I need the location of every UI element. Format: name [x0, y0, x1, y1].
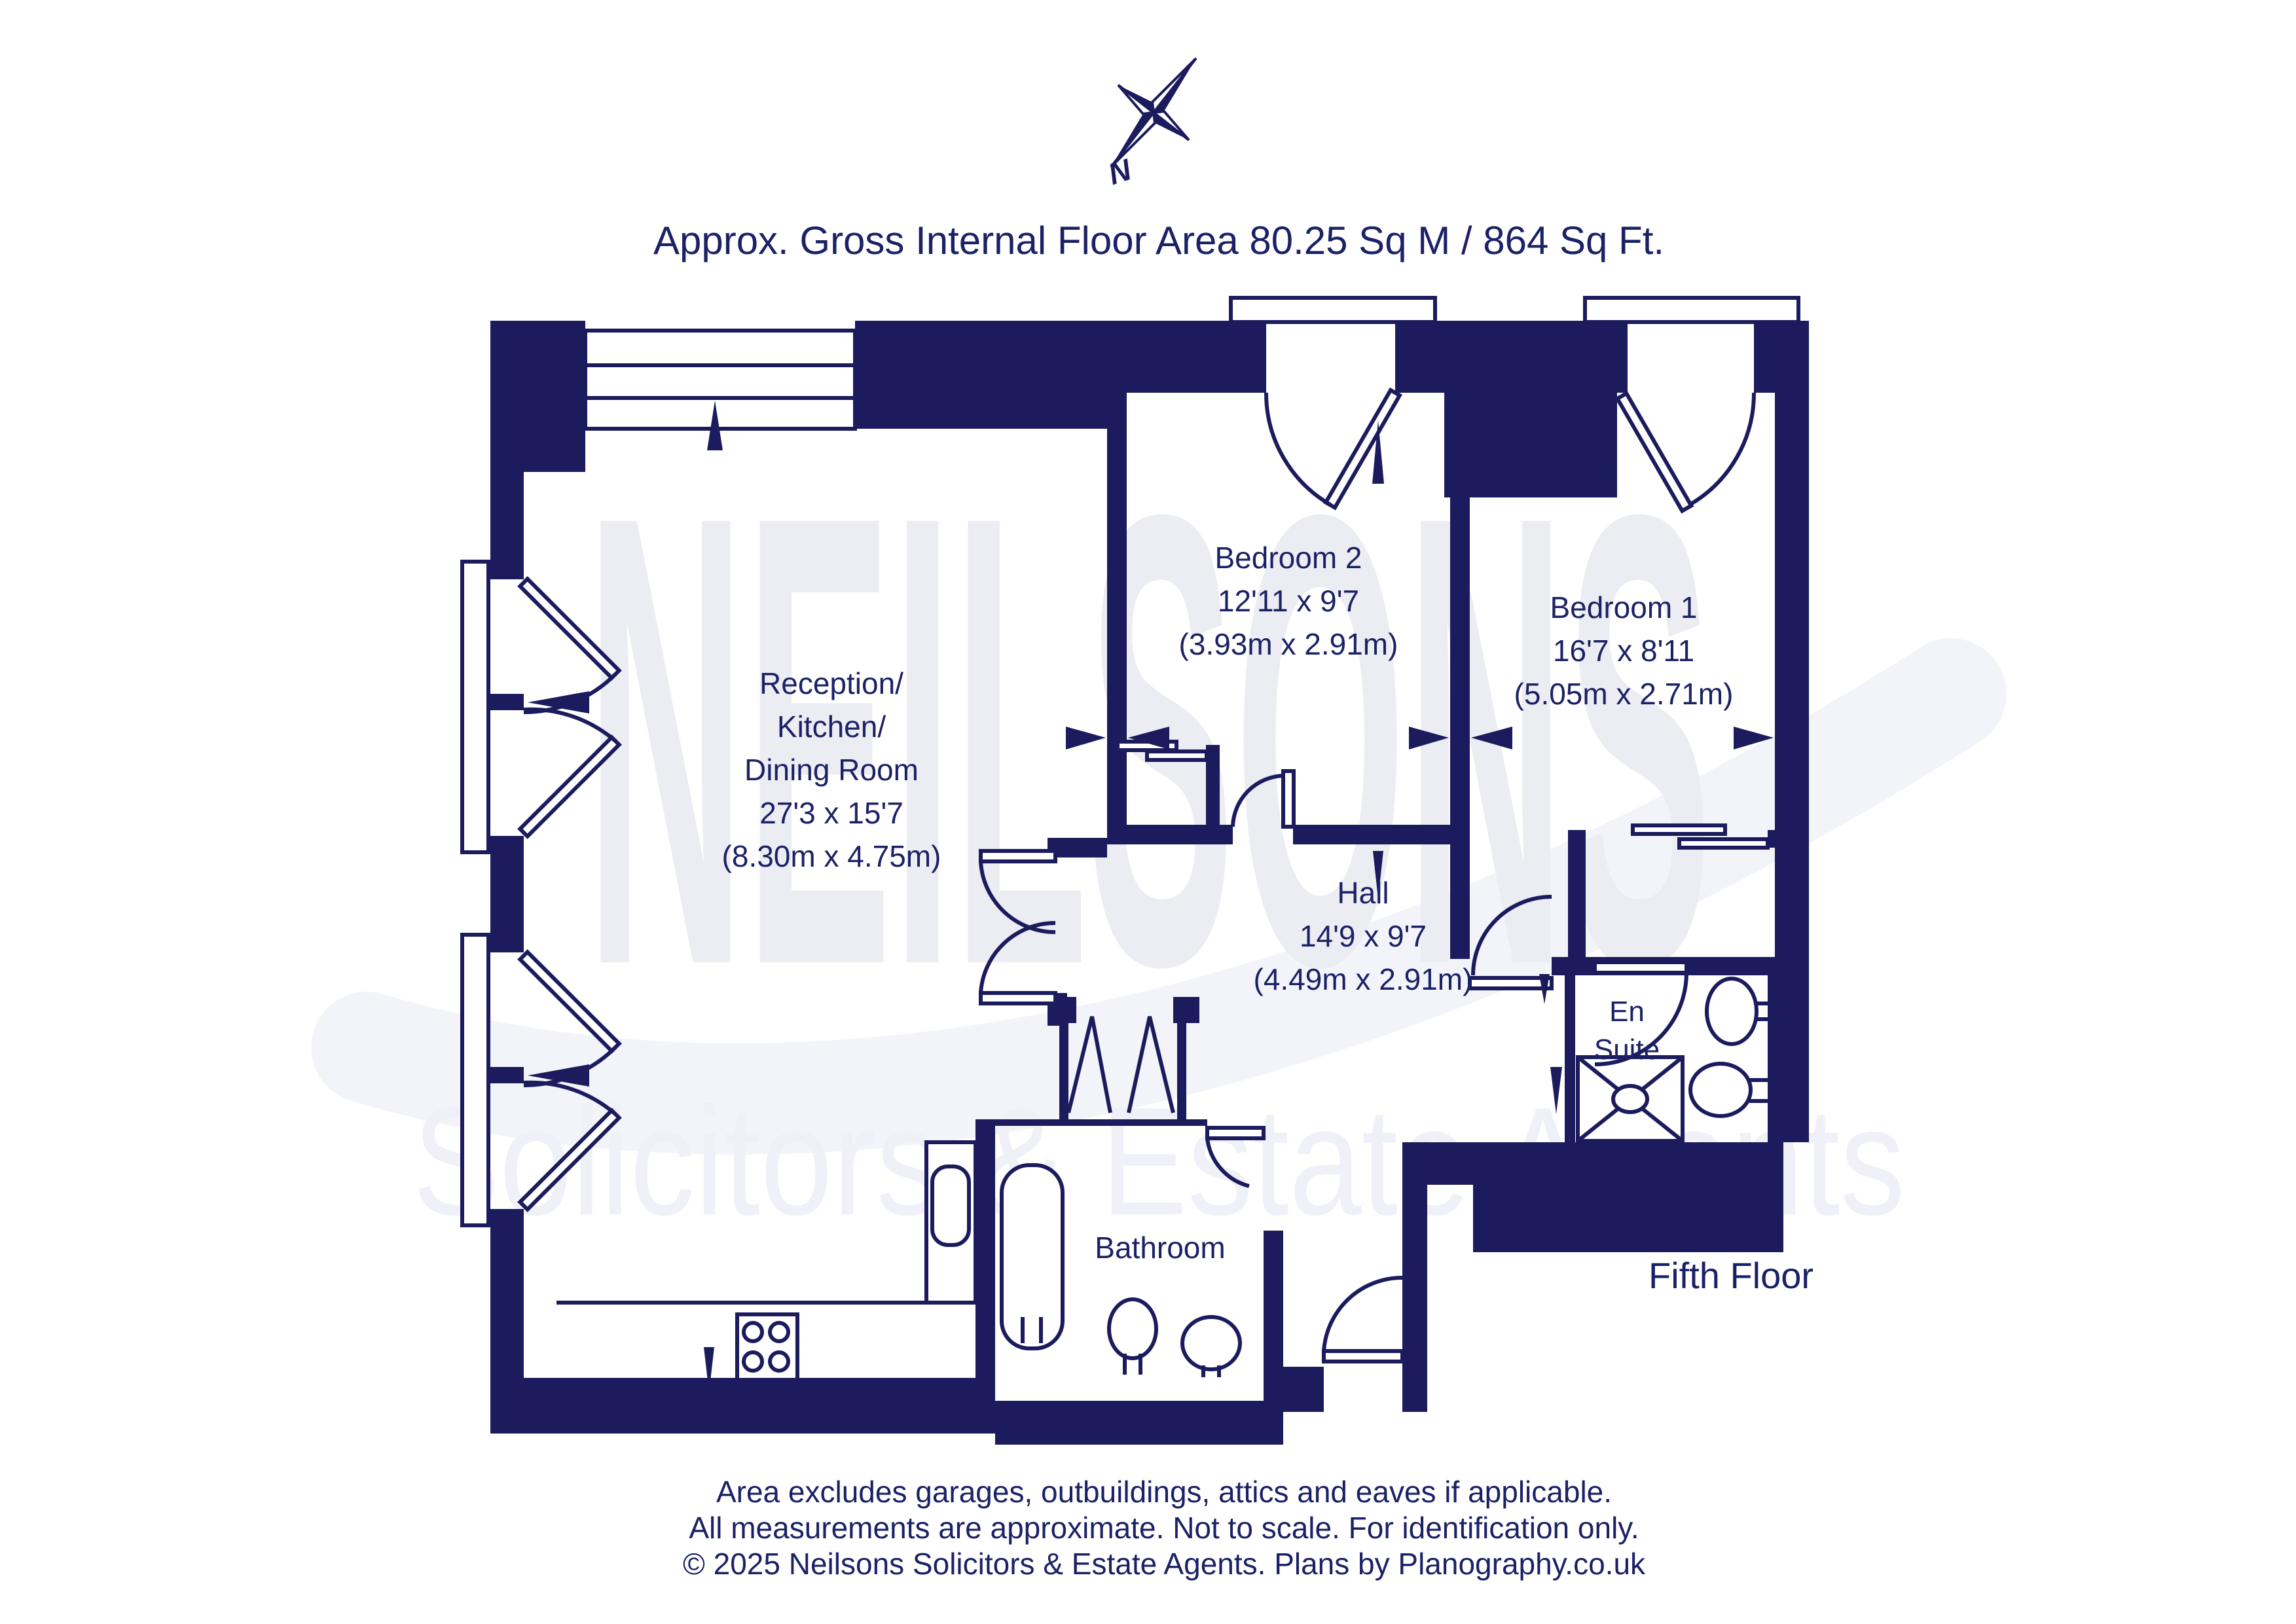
floor-plan-page: NEILSONS Solicitors & Estate Agents N Ap…	[0, 0, 2296, 1624]
ensuite-sink-icon	[1707, 979, 1768, 1044]
bathroom-label: Bathroom	[1095, 1231, 1225, 1265]
toilet-icon	[1109, 1299, 1156, 1375]
sink-icon	[1182, 1317, 1240, 1377]
page-title: Approx. Gross Internal Floor Area 80.25 …	[653, 219, 1664, 262]
compass-icon: N	[1104, 58, 1196, 191]
wardrobe-slider	[1679, 839, 1768, 848]
footer-line: Area excludes garages, outbuildings, att…	[716, 1475, 1612, 1509]
compass-north-label: N	[1104, 152, 1135, 191]
svg-text:(8.30m x 4.75m): (8.30m x 4.75m)	[722, 839, 941, 873]
svg-text:(3.93m x 2.91m): (3.93m x 2.91m)	[1179, 627, 1398, 661]
svg-text:27'3 x 15'7: 27'3 x 15'7	[759, 796, 903, 830]
window-sill	[1585, 298, 1798, 322]
bath-icon	[1002, 1165, 1063, 1348]
footer-line: © 2025 Neilsons Solicitors & Estate Agen…	[683, 1547, 1646, 1581]
window-sill	[1231, 298, 1435, 322]
svg-text:16'7 x 8'11: 16'7 x 8'11	[1553, 634, 1694, 668]
kitchen-sink-icon	[932, 1166, 969, 1245]
wardrobe-slider	[1633, 825, 1725, 834]
wardrobe-slider	[1147, 751, 1207, 760]
svg-text:(5.05m x 2.71m): (5.05m x 2.71m)	[1514, 677, 1734, 711]
compass-point	[1154, 111, 1189, 140]
compass-point	[1152, 58, 1196, 113]
floor-plan: NEILSONS Solicitors & Estate Agents N Ap…	[0, 0, 2296, 1624]
footer: Area excludes garages, outbuildings, att…	[683, 1475, 1646, 1581]
stairs-icon	[585, 331, 855, 429]
balcony-outline	[462, 562, 488, 852]
floor-name-label: Fifth Floor	[1649, 1255, 1813, 1296]
svg-text:Dining Room: Dining Room	[744, 753, 919, 787]
compass-point	[1118, 85, 1154, 114]
svg-text:(4.49m x 2.91m): (4.49m x 2.91m)	[1254, 962, 1473, 996]
svg-text:Bedroom 2: Bedroom 2	[1214, 541, 1362, 575]
svg-text:Bedroom 1: Bedroom 1	[1550, 590, 1697, 624]
svg-text:Kitchen/: Kitchen/	[777, 710, 886, 744]
hob-icon	[737, 1314, 797, 1380]
svg-text:14'9 x 9'7: 14'9 x 9'7	[1300, 919, 1427, 953]
svg-text:12'11 x 9'7: 12'11 x 9'7	[1218, 584, 1359, 618]
svg-text:Suite: Suite	[1594, 1034, 1660, 1066]
svg-text:En: En	[1609, 996, 1645, 1028]
svg-text:Hall: Hall	[1337, 876, 1389, 910]
balcony-outline	[462, 935, 488, 1225]
shower-icon	[1578, 1057, 1683, 1141]
footer-line: All measurements are approximate. Not to…	[689, 1511, 1639, 1545]
svg-text:Reception/: Reception/	[759, 666, 903, 700]
door-entrance-icon	[1324, 1278, 1402, 1362]
